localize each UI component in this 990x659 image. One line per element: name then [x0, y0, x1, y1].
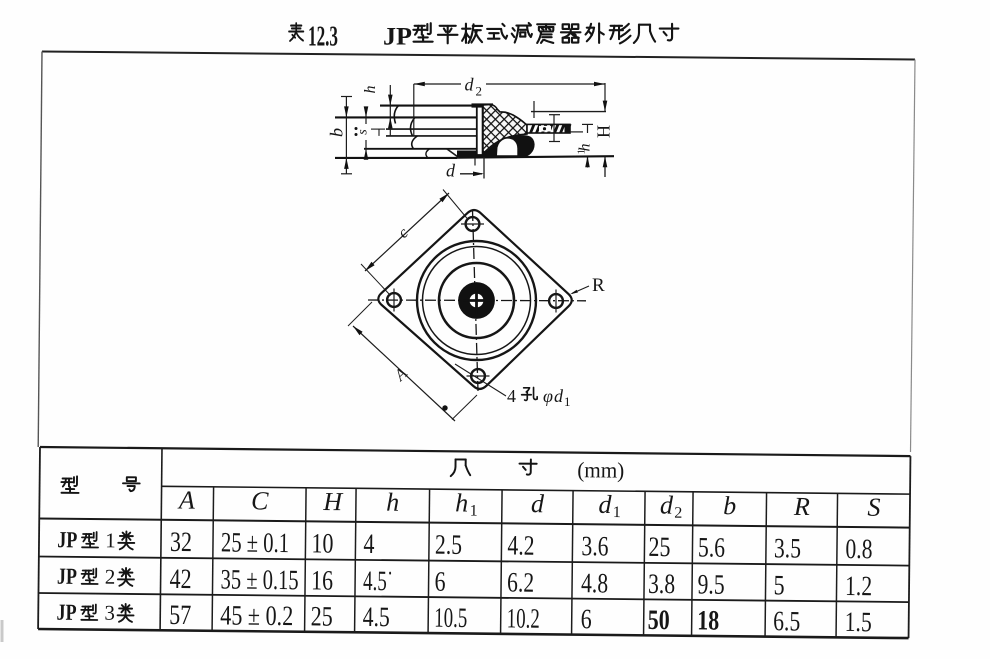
svg-text:12.3: 12.3: [308, 22, 338, 53]
svg-text:H: H: [594, 125, 614, 138]
svg-text:10.5: 10.5: [434, 603, 467, 634]
svg-text:(mm): (mm): [577, 457, 624, 482]
svg-text:5.6: 5.6: [698, 532, 725, 563]
svg-text:6: 6: [581, 604, 592, 635]
svg-text:d: d: [660, 490, 674, 519]
svg-text:b: b: [327, 128, 347, 137]
svg-text:4.2: 4.2: [507, 530, 534, 561]
svg-text:6: 6: [434, 567, 445, 598]
svg-text:32: 32: [170, 527, 192, 558]
svg-text:9.5: 9.5: [697, 569, 724, 600]
svg-text:6.5: 6.5: [773, 606, 800, 637]
svg-text:1: 1: [470, 503, 478, 520]
svg-text:4.5: 4.5: [363, 602, 390, 633]
svg-text:2: 2: [476, 84, 483, 99]
svg-text:JP: JP: [56, 600, 76, 625]
svg-text:4.8: 4.8: [581, 568, 608, 599]
svg-text:1: 1: [105, 528, 116, 552]
svg-text:1: 1: [613, 504, 621, 521]
svg-text:10: 10: [311, 528, 333, 559]
svg-text:d: d: [446, 161, 456, 181]
svg-text:d: d: [531, 489, 545, 518]
svg-text:2: 2: [105, 565, 116, 589]
svg-text:JP: JP: [57, 564, 77, 589]
svg-text:d: d: [465, 75, 475, 95]
svg-text:25: 25: [311, 601, 333, 632]
svg-text:4: 4: [363, 529, 374, 560]
svg-text:2: 2: [674, 505, 682, 522]
svg-text:4: 4: [507, 386, 516, 406]
svg-text:b: b: [723, 491, 736, 520]
svg-text:s: s: [356, 129, 371, 135]
svg-text:C: C: [251, 486, 269, 515]
svg-text:25: 25: [648, 532, 670, 563]
svg-text:3.6: 3.6: [581, 531, 608, 562]
svg-text:1.5: 1.5: [845, 607, 872, 638]
svg-text:1: 1: [564, 394, 571, 409]
svg-text:H: H: [322, 487, 343, 516]
svg-text:18: 18: [697, 605, 719, 636]
svg-text:3.5: 3.5: [774, 533, 801, 564]
svg-text:10.2: 10.2: [507, 603, 540, 634]
svg-text:1: 1: [576, 149, 588, 155]
svg-text:d: d: [598, 490, 612, 519]
svg-text:JP: JP: [57, 527, 77, 552]
svg-text:16: 16: [311, 565, 333, 596]
svg-text:R: R: [592, 275, 605, 296]
svg-text:3: 3: [104, 601, 115, 625]
svg-text:h: h: [455, 488, 468, 517]
svg-text:57: 57: [169, 600, 191, 631]
svg-text:42: 42: [169, 564, 191, 595]
svg-text:45 ± 0.2: 45 ± 0.2: [220, 600, 293, 632]
svg-text:JP: JP: [383, 24, 412, 51]
svg-text:5: 5: [773, 570, 784, 601]
svg-text:h: h: [386, 488, 399, 517]
svg-text:6.2: 6.2: [507, 567, 534, 598]
svg-text:1.2: 1.2: [845, 571, 872, 602]
svg-text:0.8: 0.8: [845, 534, 872, 565]
svg-text:2.5: 2.5: [435, 530, 462, 561]
svg-text:25 ± 0.1: 25 ± 0.1: [221, 527, 289, 559]
svg-text:φ: φ: [543, 386, 553, 406]
svg-text:S: S: [867, 493, 880, 522]
svg-text:4.5˙: 4.5˙: [363, 566, 393, 597]
svg-text:d: d: [554, 386, 564, 406]
svg-text:R: R: [793, 492, 810, 521]
svg-text:A: A: [177, 485, 195, 514]
svg-text:35 ± 0.15: 35 ± 0.15: [220, 564, 298, 596]
svg-text:3.8: 3.8: [648, 569, 675, 600]
svg-text:h: h: [362, 86, 379, 94]
svg-text:50: 50: [648, 605, 670, 636]
